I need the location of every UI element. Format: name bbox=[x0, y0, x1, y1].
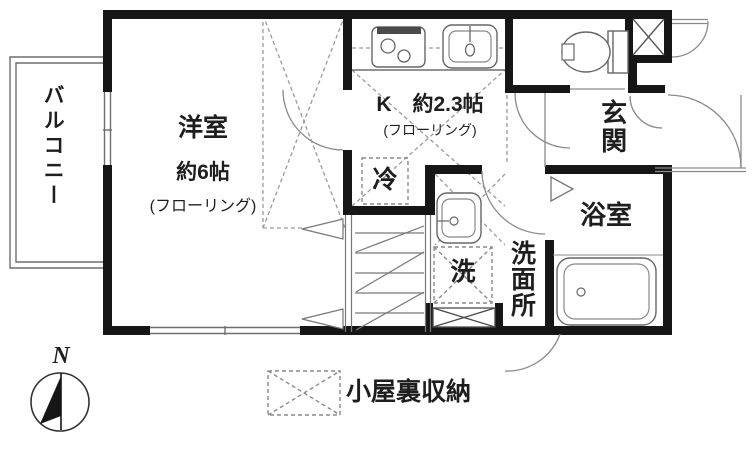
outside-door-arc bbox=[672, 21, 708, 57]
sink-icon bbox=[443, 25, 497, 68]
drain-pan-icon bbox=[433, 308, 495, 327]
pipe-space-icon bbox=[633, 19, 664, 55]
washroom-door-arc bbox=[482, 171, 545, 234]
western-room-label: 洋室 bbox=[150, 115, 256, 143]
entrance-door-arc bbox=[668, 95, 741, 168]
room-door-arc bbox=[283, 90, 343, 150]
bathtub-icon bbox=[553, 255, 663, 325]
refrigerator-label: 冷 bbox=[362, 167, 408, 195]
legend-label: 小屋裏収納 bbox=[346, 379, 471, 407]
compass-icon bbox=[31, 373, 89, 431]
toilet-door-arc bbox=[515, 93, 570, 148]
stove-icon bbox=[372, 27, 425, 67]
ladder-icon bbox=[302, 215, 431, 332]
floorplan-image: バルコニー 洋室 約6帖 (フローリング) K 約2.3帖 (フローリング) 冷… bbox=[0, 0, 756, 453]
lower-door-arc bbox=[505, 334, 560, 371]
compass-north-label: N bbox=[46, 343, 76, 369]
door-arcs bbox=[283, 20, 746, 372]
kitchen-label: K 約2.3帖 bbox=[356, 93, 504, 116]
bath-folding-door-icon bbox=[551, 177, 573, 201]
washroom-label: 洗面所 bbox=[507, 240, 535, 318]
balcony-label: バルコニー bbox=[41, 84, 64, 209]
western-room-floor-note: (フローリング) bbox=[140, 198, 266, 216]
shoe-door-arc bbox=[630, 96, 662, 128]
western-room-size: 約6帖 bbox=[150, 161, 256, 184]
entrance-label: 玄関 bbox=[598, 99, 627, 155]
legend-box bbox=[268, 371, 340, 415]
toilet-icon bbox=[562, 31, 628, 73]
kitchen-floor-note: (フローリング) bbox=[368, 123, 492, 138]
washer-label: 洗 bbox=[434, 259, 492, 287]
bathroom-label: 浴室 bbox=[563, 201, 649, 230]
kitchen-counter bbox=[352, 25, 505, 70]
basin-icon bbox=[437, 193, 481, 243]
